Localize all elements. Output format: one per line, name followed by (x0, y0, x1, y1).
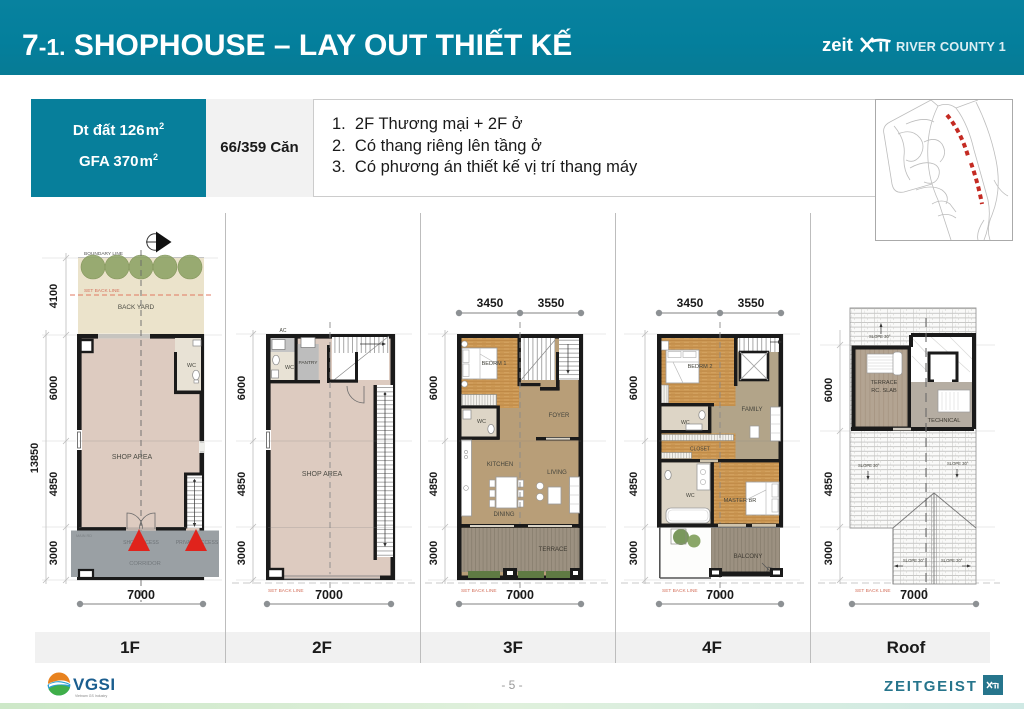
svg-text:SLOPE 30°: SLOPE 30° (941, 558, 963, 563)
svg-text:3450: 3450 (677, 296, 704, 310)
svg-text:FOYER: FOYER (549, 413, 570, 419)
svg-text:FAMILY: FAMILY (742, 407, 763, 413)
svg-text:4850: 4850 (823, 472, 835, 496)
svg-text:6000: 6000 (628, 376, 640, 400)
svg-text:SHOP AREA: SHOP AREA (112, 454, 153, 461)
svg-text:CLOSET: CLOSET (690, 447, 710, 453)
svg-text:BACK YARD: BACK YARD (118, 304, 155, 311)
svg-text:RC. SLAB: RC. SLAB (871, 388, 897, 394)
svg-text:3000: 3000 (48, 541, 60, 565)
svg-text:SLOPE 30°: SLOPE 30° (903, 558, 925, 563)
svg-text:TERRACE: TERRACE (539, 547, 568, 553)
svg-text:PANTRY: PANTRY (298, 360, 318, 366)
svg-text:SET BACK LINE: SET BACK LINE (268, 588, 304, 594)
svg-text:7000: 7000 (127, 588, 155, 602)
svg-text:3550: 3550 (538, 296, 565, 310)
svg-text:SLOPE 30°: SLOPE 30° (947, 461, 969, 466)
svg-text:7000: 7000 (706, 588, 734, 602)
svg-text:4850: 4850 (236, 472, 248, 496)
svg-text:SET BACK LINE: SET BACK LINE (461, 588, 497, 594)
svg-text:WC: WC (187, 363, 196, 369)
svg-text:3450: 3450 (477, 296, 504, 310)
svg-text:3550: 3550 (738, 296, 765, 310)
svg-text:4850: 4850 (428, 472, 440, 496)
svg-text:SET BACK LINE: SET BACK LINE (855, 588, 891, 594)
svg-text:KITCHEN: KITCHEN (487, 462, 513, 468)
svg-text:13850: 13850 (29, 443, 41, 474)
svg-text:SLOPE 30°: SLOPE 30° (869, 334, 891, 339)
svg-text:MASTER BR: MASTER BR (724, 498, 757, 504)
svg-text:WC: WC (285, 365, 294, 371)
svg-text:BALCONY: BALCONY (734, 554, 763, 560)
svg-text:BEDRM 2: BEDRM 2 (688, 364, 713, 370)
svg-text:6000: 6000 (823, 378, 835, 402)
svg-text:4850: 4850 (48, 472, 60, 496)
svg-text:6000: 6000 (236, 376, 248, 400)
svg-text:3000: 3000 (628, 541, 640, 565)
svg-text:7000: 7000 (900, 588, 928, 602)
svg-text:WC: WC (686, 493, 695, 499)
svg-text:SLOPE 30°: SLOPE 30° (858, 463, 880, 468)
svg-text:SET BACK LINE: SET BACK LINE (84, 288, 120, 294)
svg-text:LIVING: LIVING (547, 470, 567, 476)
svg-text:WC: WC (477, 419, 486, 425)
svg-text:SHOP AREA: SHOP AREA (302, 471, 343, 478)
svg-text:TECHNICAL: TECHNICAL (928, 418, 962, 424)
svg-text:TERRACE: TERRACE (871, 380, 898, 386)
svg-text:DINING: DINING (494, 512, 515, 518)
svg-text:4850: 4850 (628, 472, 640, 496)
svg-text:CORRIDOR: CORRIDOR (129, 561, 161, 567)
svg-text:6000: 6000 (48, 376, 60, 400)
svg-text:6000: 6000 (428, 376, 440, 400)
svg-text:SET BACK LINE: SET BACK LINE (662, 588, 698, 594)
svg-text:7000: 7000 (506, 588, 534, 602)
svg-text:AC: AC (280, 328, 287, 334)
svg-text:3000: 3000 (428, 541, 440, 565)
svg-text:7000: 7000 (315, 588, 343, 602)
svg-text:BEDRM 1: BEDRM 1 (482, 361, 507, 367)
svg-text:3000: 3000 (236, 541, 248, 565)
svg-text:MAIN RD: MAIN RD (76, 534, 92, 538)
svg-text:3000: 3000 (823, 541, 835, 565)
svg-text:4100: 4100 (48, 284, 60, 308)
